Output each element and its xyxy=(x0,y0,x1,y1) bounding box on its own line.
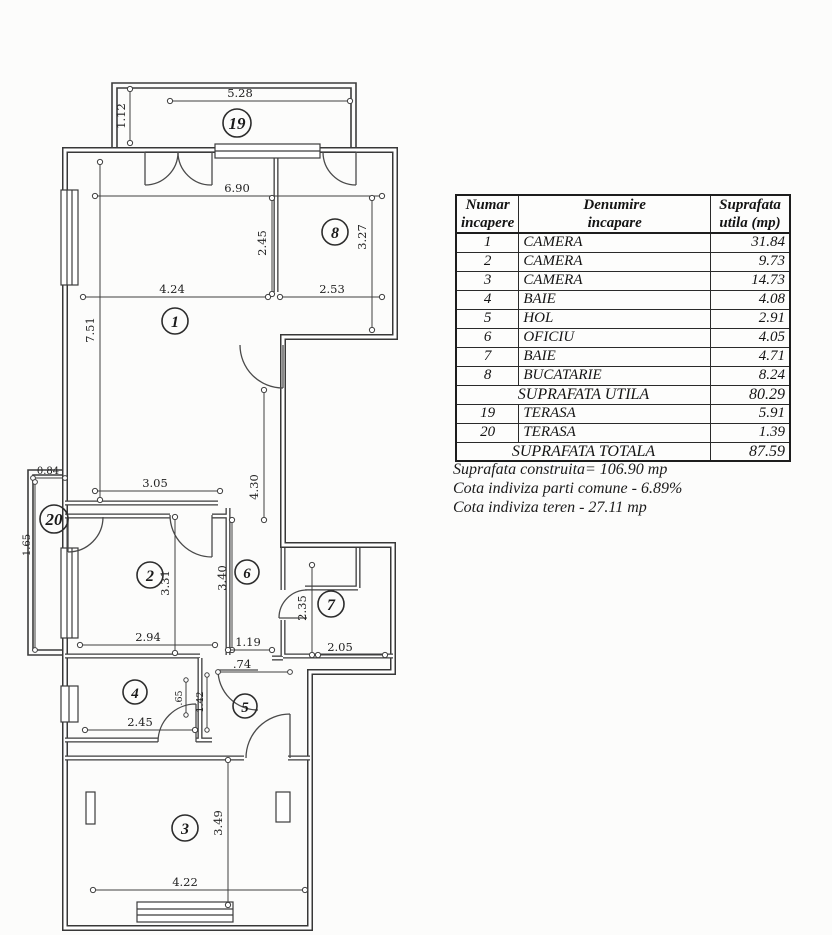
svg-text:4: 4 xyxy=(130,686,139,702)
header-denumire: Denumireincapare xyxy=(519,195,711,233)
note-cota-teren: Cota indiviza teren - 27.11 mp xyxy=(453,498,793,517)
dimension-label: 3.27 xyxy=(355,224,369,250)
svg-text:3: 3 xyxy=(180,821,189,838)
table-row: 4BAIE4.08 xyxy=(456,290,790,309)
dimension-label: 3.49 xyxy=(211,810,225,836)
note-suprafata-construita: Suprafata construita= 106.90 mp xyxy=(453,460,793,479)
svg-text:8: 8 xyxy=(331,225,339,242)
dimension-label: .74 xyxy=(233,657,251,671)
door-arc-hall5 xyxy=(218,670,258,710)
table-row: 3CAMERA14.73 xyxy=(456,271,790,290)
room-label-1: 1 xyxy=(162,308,188,334)
dimension-label: 4.30 xyxy=(247,474,261,500)
room-label-4: 4 xyxy=(123,680,147,704)
dimension-label: 4.24 xyxy=(159,282,185,296)
svg-text:1: 1 xyxy=(171,314,179,331)
dimension-label: 3.05 xyxy=(142,476,168,490)
svg-text:2: 2 xyxy=(145,568,154,585)
door-arc-terrace19-left xyxy=(145,152,178,185)
dimension-label: 6.90 xyxy=(224,181,250,195)
door-arc-terrace19-kitchen xyxy=(323,152,356,185)
header-numar: Numarincapere xyxy=(456,195,519,233)
door-arc-room2 xyxy=(170,515,212,557)
table-row: 2CAMERA9.73 xyxy=(456,252,790,271)
dimension-label: 3.40 xyxy=(215,565,229,591)
dimension-label: 2.45 xyxy=(255,230,269,256)
door-arc-terrace20 xyxy=(68,517,103,552)
dimension-label: 1.19 xyxy=(235,635,261,649)
room-label-6: 6 xyxy=(235,560,259,584)
dimension-label: 4.22 xyxy=(172,875,198,889)
table-row: 8BUCATARIE8.24 xyxy=(456,366,790,385)
dimension-label: 2.35 xyxy=(295,595,309,621)
note-cota-comune: Cota indiviza parti comune - 6.89% xyxy=(453,479,793,498)
table-header-row: Numarincapere Denumireincapare Suprafata… xyxy=(456,195,790,233)
dimension-label: 1.12 xyxy=(114,103,128,129)
suprafata-utila-row: SUPRAFATA UTILA80.29 xyxy=(456,385,790,404)
dimension-label: 2.94 xyxy=(135,630,161,644)
dimension-label: .65 xyxy=(174,690,185,705)
door-arc-room3 xyxy=(246,714,290,758)
room-label-7: 7 xyxy=(318,591,344,617)
dimension-label: 5.28 xyxy=(227,86,253,100)
door-arc-terrace19-right xyxy=(178,152,212,185)
table-row: 19TERASA5.91 xyxy=(456,404,790,423)
table-row: 6OFICIU4.05 xyxy=(456,328,790,347)
table-row: 20TERASA1.39 xyxy=(456,423,790,442)
terrace-20-outline xyxy=(28,470,65,655)
dimension-label: 1.65 xyxy=(22,534,33,556)
svg-text:5: 5 xyxy=(241,700,249,716)
svg-text:7: 7 xyxy=(327,597,336,614)
area-table: Numarincapere Denumireincapare Suprafata… xyxy=(455,194,791,462)
dimension-label: 7.51 xyxy=(83,317,97,343)
table-row: 5HOL2.91 xyxy=(456,309,790,328)
dimension-label: 2.53 xyxy=(319,282,345,296)
door-arc-room4 xyxy=(158,704,196,742)
door-arc-room1-hall xyxy=(240,345,283,388)
notes: Suprafata construita= 106.90 mp Cota ind… xyxy=(453,460,793,517)
interior-walls xyxy=(65,152,393,758)
table-row: 1CAMERA31.84 xyxy=(456,233,790,252)
svg-text:20: 20 xyxy=(45,510,64,529)
dimension-label: 2.45 xyxy=(127,715,153,729)
svg-text:6: 6 xyxy=(243,566,251,582)
suprafata-totala-row: SUPRAFATA TOTALA87.59 xyxy=(456,442,790,461)
table-row: 7BAIE4.71 xyxy=(456,347,790,366)
dimension-lines xyxy=(31,86,388,907)
door-arcs xyxy=(68,152,356,758)
room-label-8: 8 xyxy=(322,219,348,245)
dimension-label: 1.42 xyxy=(195,691,206,712)
room-label-19: 19 xyxy=(223,109,251,137)
svg-text:19: 19 xyxy=(229,114,247,133)
room-label-5: 5 xyxy=(233,694,257,718)
header-suprafata: Suprafatautila (mp) xyxy=(711,195,791,233)
dimension-label: 2.05 xyxy=(327,640,353,654)
dimension-label: 0.84 xyxy=(37,466,59,477)
room-label-3: 3 xyxy=(172,815,198,841)
